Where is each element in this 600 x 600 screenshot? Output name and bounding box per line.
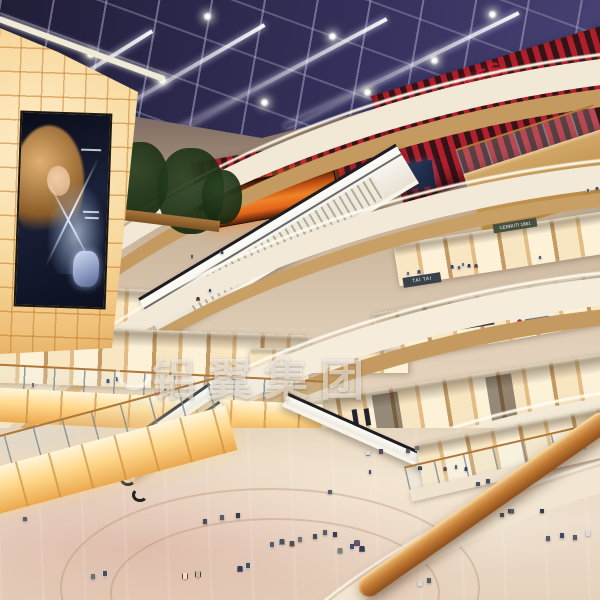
mall-atrium-rendering: THEATRES CERRUTI 1881 TAI TAI CERRUTI 18… bbox=[0, 0, 600, 600]
person bbox=[359, 546, 365, 561]
person bbox=[245, 563, 251, 578]
watermark-text: 铝翼集团 bbox=[152, 344, 376, 408]
person bbox=[236, 513, 241, 526]
person bbox=[427, 578, 432, 591]
person bbox=[379, 449, 384, 461]
person bbox=[220, 515, 225, 528]
person bbox=[595, 187, 598, 195]
person bbox=[203, 519, 208, 532]
person bbox=[415, 446, 420, 458]
person bbox=[406, 272, 409, 281]
person bbox=[467, 264, 470, 273]
person bbox=[457, 266, 460, 275]
person bbox=[586, 189, 589, 197]
person bbox=[102, 571, 108, 586]
person bbox=[500, 513, 505, 525]
person bbox=[560, 533, 565, 546]
person bbox=[510, 509, 515, 521]
person bbox=[220, 251, 223, 259]
person bbox=[461, 263, 464, 272]
person bbox=[196, 297, 199, 306]
person bbox=[269, 542, 274, 556]
person bbox=[297, 537, 302, 551]
person bbox=[540, 509, 545, 521]
person bbox=[106, 379, 110, 389]
person bbox=[474, 264, 477, 273]
person bbox=[90, 574, 96, 589]
person bbox=[333, 532, 338, 545]
person bbox=[417, 270, 420, 279]
person bbox=[464, 467, 468, 478]
person bbox=[476, 482, 481, 494]
person bbox=[586, 531, 591, 544]
person bbox=[406, 449, 411, 461]
person bbox=[450, 265, 453, 274]
person bbox=[279, 539, 284, 553]
person bbox=[237, 566, 243, 581]
person bbox=[289, 541, 294, 555]
person bbox=[208, 289, 211, 298]
person bbox=[538, 256, 541, 264]
person bbox=[366, 451, 371, 463]
person bbox=[337, 548, 343, 563]
person bbox=[23, 517, 28, 529]
person bbox=[313, 534, 318, 547]
person bbox=[573, 535, 578, 548]
person bbox=[182, 573, 188, 589]
person bbox=[195, 571, 201, 587]
person bbox=[418, 581, 423, 594]
person bbox=[323, 530, 328, 543]
person bbox=[354, 540, 359, 554]
person bbox=[443, 467, 447, 478]
person bbox=[31, 383, 35, 393]
person bbox=[328, 490, 333, 502]
person bbox=[546, 536, 551, 549]
person bbox=[190, 255, 193, 263]
person bbox=[418, 466, 422, 477]
person bbox=[454, 465, 458, 476]
people-layer bbox=[0, 0, 600, 600]
person bbox=[368, 470, 372, 481]
